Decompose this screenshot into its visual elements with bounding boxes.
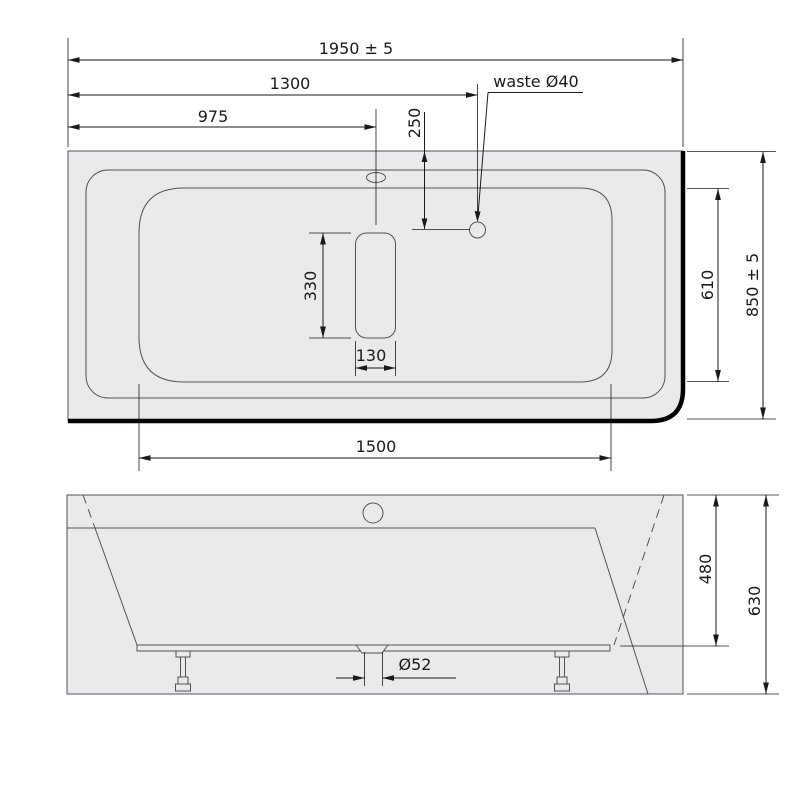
dim-headrest-length-label: 330: [301, 271, 320, 302]
drawing-page: 1950 ± 5 1300 975 250 waste Ø40 330 130: [0, 0, 800, 800]
dim-total-height-label: 630: [745, 586, 764, 617]
dim-inner-length-label: 1500: [356, 437, 397, 456]
waste-note-label: waste Ø40: [493, 72, 578, 91]
dim-overflow-x-label: 975: [198, 107, 229, 126]
dim-drain-diameter-label: Ø52: [399, 655, 432, 674]
dim-waste-y-label: 250: [405, 108, 424, 139]
dim-body-height-label: 480: [696, 554, 715, 585]
bathtub-drawing: 1950 ± 5 1300 975 250 waste Ø40 330 130: [0, 0, 800, 800]
dim-inner-width-label: 610: [698, 270, 717, 301]
top-view: [68, 151, 683, 421]
drain-bump: [356, 645, 388, 653]
dim-overall-length-label: 1950 ± 5: [319, 39, 393, 58]
dim-waste-x-label: 1300: [270, 74, 311, 93]
dim-headrest-width-label: 130: [356, 346, 387, 365]
front-view: [67, 495, 683, 694]
dim-overall-width-label: 850 ± 5: [743, 253, 762, 317]
front-view-body: [67, 495, 683, 694]
